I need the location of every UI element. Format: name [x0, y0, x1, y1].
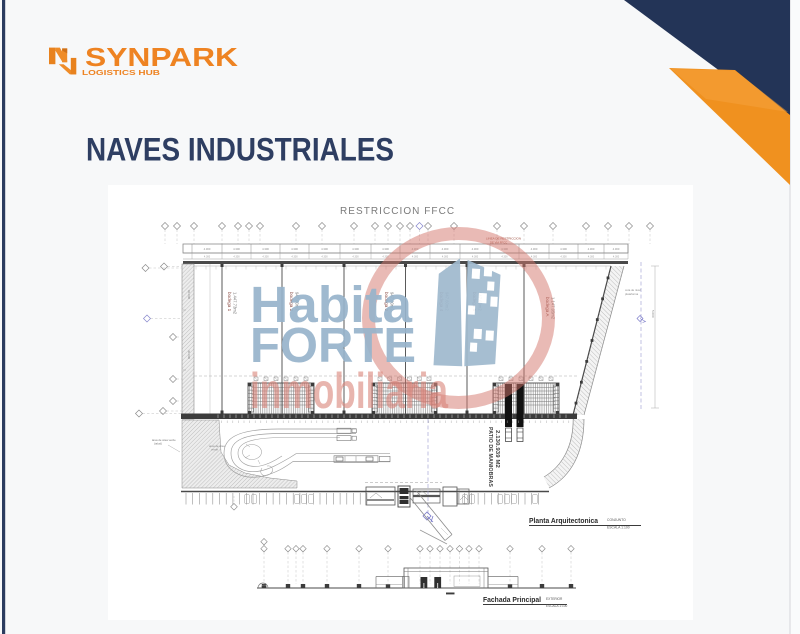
svg-text:4.300: 4.300 [204, 256, 211, 259]
svg-text:4.300: 4.300 [560, 247, 567, 251]
svg-text:4.300: 4.300 [262, 247, 269, 251]
svg-text:ESCALA 1:100: ESCALA 1:100 [607, 526, 630, 530]
svg-text:PATIO DE MANIOBRAS: PATIO DE MANIOBRAS [487, 427, 493, 487]
svg-text:4.300: 4.300 [382, 247, 389, 251]
svg-text:4.300: 4.300 [412, 256, 419, 259]
svg-text:4.300: 4.300 [531, 247, 538, 251]
svg-text:verde: verde [211, 448, 218, 452]
svg-text:4.300: 4.300 [442, 247, 449, 251]
svg-text:RESTRICCION FFCC: RESTRICCION FFCC [340, 206, 455, 217]
svg-text:4.300: 4.300 [472, 256, 479, 259]
svg-text:4.300: 4.300 [352, 256, 359, 259]
svg-text:4.300: 4.300 [442, 256, 449, 259]
svg-text:4.300: 4.300 [321, 256, 328, 259]
svg-text:4.300: 4.300 [501, 256, 508, 259]
svg-text:40.000: 40.000 [187, 350, 191, 360]
svg-text:4.300: 4.300 [613, 256, 620, 259]
svg-text:4.300: 4.300 [321, 247, 328, 251]
svg-text:4.300: 4.300 [472, 247, 479, 251]
svg-text:2.130.939 M2: 2.130.939 M2 [494, 430, 500, 468]
svg-text:4.300: 4.300 [588, 256, 595, 259]
svg-text:4.300: 4.300 [531, 256, 538, 259]
svg-text:4.300: 4.300 [262, 256, 269, 259]
svg-text:4.300: 4.300 [291, 256, 298, 259]
svg-text:ESCALA 1:100: ESCALA 1:100 [546, 604, 567, 608]
svg-text:Fachada Principal: Fachada Principal [483, 597, 541, 604]
svg-text:Planta Arquitectonica: Planta Arquitectonica [529, 516, 599, 525]
svg-text:4.300: 4.300 [233, 247, 240, 251]
svg-text:4.300: 4.300 [204, 247, 211, 251]
svg-text:4.300: 4.300 [291, 247, 298, 251]
svg-text:4.300: 4.300 [613, 247, 620, 251]
svg-text:LOGISTICS HUB: LOGISTICS HUB [82, 68, 161, 77]
svg-text:60.000: 60.000 [187, 290, 191, 300]
svg-text:1.447.73m2: 1.447.73m2 [233, 292, 238, 315]
svg-text:EXTERIOR: EXTERIOR [546, 597, 563, 601]
svg-text:plataforma: plataforma [625, 292, 639, 296]
svg-text:(talud): (talud) [154, 442, 162, 446]
svg-text:bodega 1: bodega 1 [227, 292, 232, 312]
svg-text:5.000: 5.000 [651, 310, 655, 318]
svg-text:4.300: 4.300 [352, 247, 359, 251]
svg-text:CONJUNTO: CONJUNTO [607, 518, 626, 522]
svg-text:inmobiliaria: inmobiliaria [250, 363, 449, 419]
svg-text:4.300: 4.300 [560, 256, 567, 259]
svg-text:4.300: 4.300 [233, 256, 240, 259]
svg-text:NAVES INDUSTRIALES: NAVES INDUSTRIALES [86, 132, 394, 168]
svg-text:4.300: 4.300 [588, 247, 595, 251]
